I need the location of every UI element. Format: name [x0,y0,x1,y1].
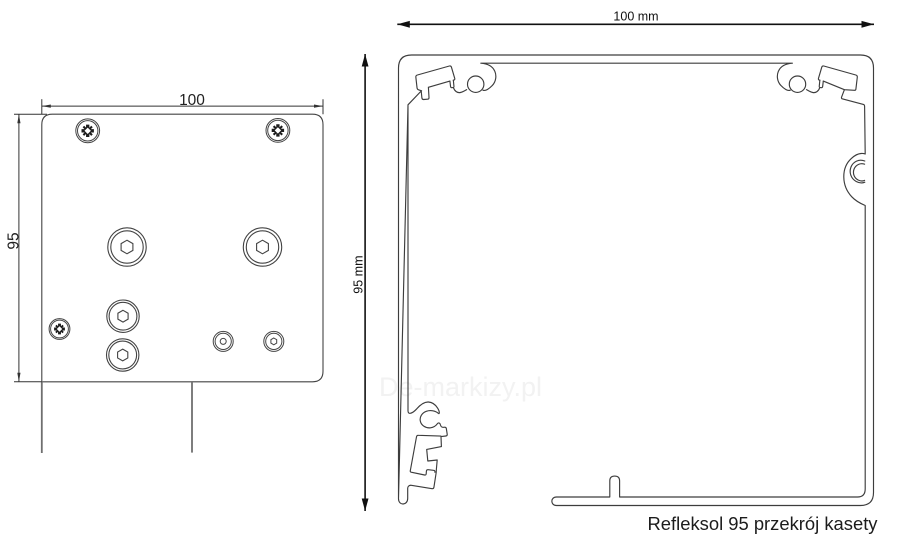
svg-text:100 mm: 100 mm [613,10,658,24]
svg-text:95: 95 [6,232,23,249]
svg-text:Refleksol 95 przekrój kasety: Refleksol 95 przekrój kasety [648,513,879,534]
svg-text:95 mm: 95 mm [351,255,365,293]
svg-text:100: 100 [179,92,205,109]
svg-text:De-markizy.pl: De-markizy.pl [379,372,542,402]
